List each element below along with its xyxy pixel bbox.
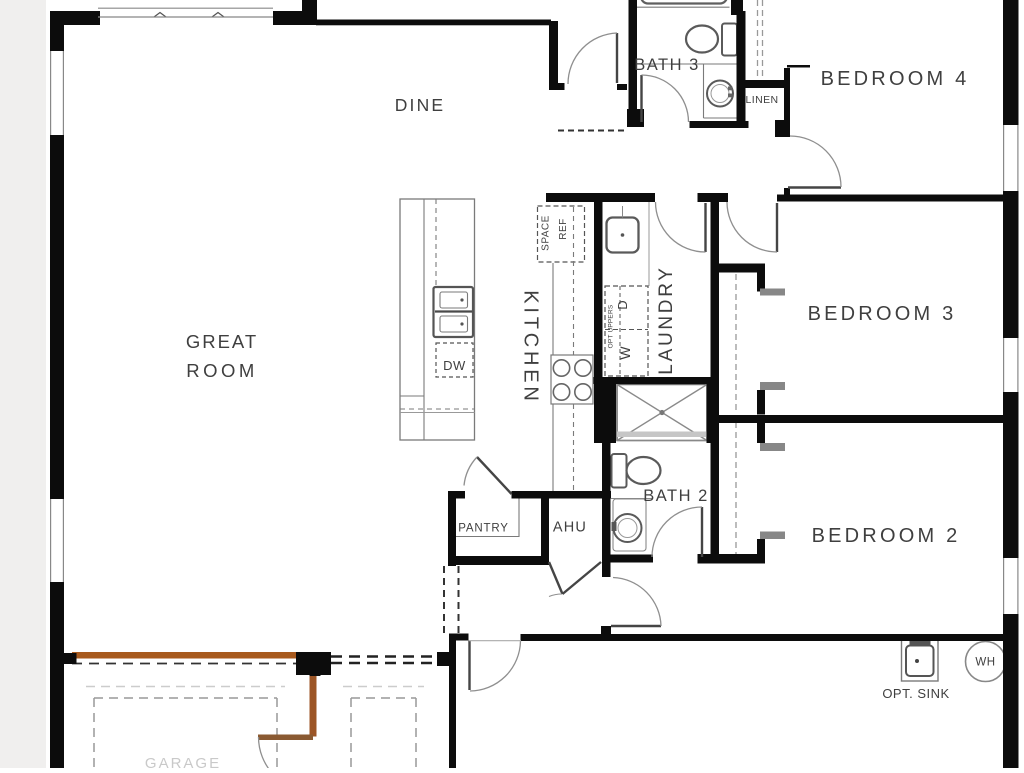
svg-text:LINEN: LINEN [746,94,779,106]
svg-text:WH: WH [975,657,995,669]
svg-text:BATH 3: BATH 3 [634,56,700,74]
svg-text:GREAT: GREAT [186,331,258,352]
svg-text:KITCHEN: KITCHEN [520,290,542,404]
svg-text:REF: REF [558,218,569,240]
svg-text:SPACE: SPACE [541,215,552,251]
svg-text:OPT. SINK: OPT. SINK [882,686,949,701]
svg-text:D: D [615,300,630,309]
svg-text:AHU: AHU [553,520,587,536]
svg-text:PANTRY: PANTRY [458,523,508,535]
svg-text:DINE: DINE [395,95,446,115]
svg-text:ROOM: ROOM [186,360,258,381]
svg-text:BEDROOM 4: BEDROOM 4 [821,68,970,90]
svg-text:GARAGE: GARAGE [145,755,221,768]
svg-text:BEDROOM 3: BEDROOM 3 [808,303,957,325]
svg-text:BEDROOM 2: BEDROOM 2 [812,525,961,547]
svg-text:BATH 2: BATH 2 [643,487,709,505]
svg-text:OPT UPPERS: OPT UPPERS [608,304,615,348]
svg-text:LAUNDRY: LAUNDRY [656,265,677,374]
svg-text:DW: DW [443,358,466,373]
svg-text:W: W [617,346,633,360]
